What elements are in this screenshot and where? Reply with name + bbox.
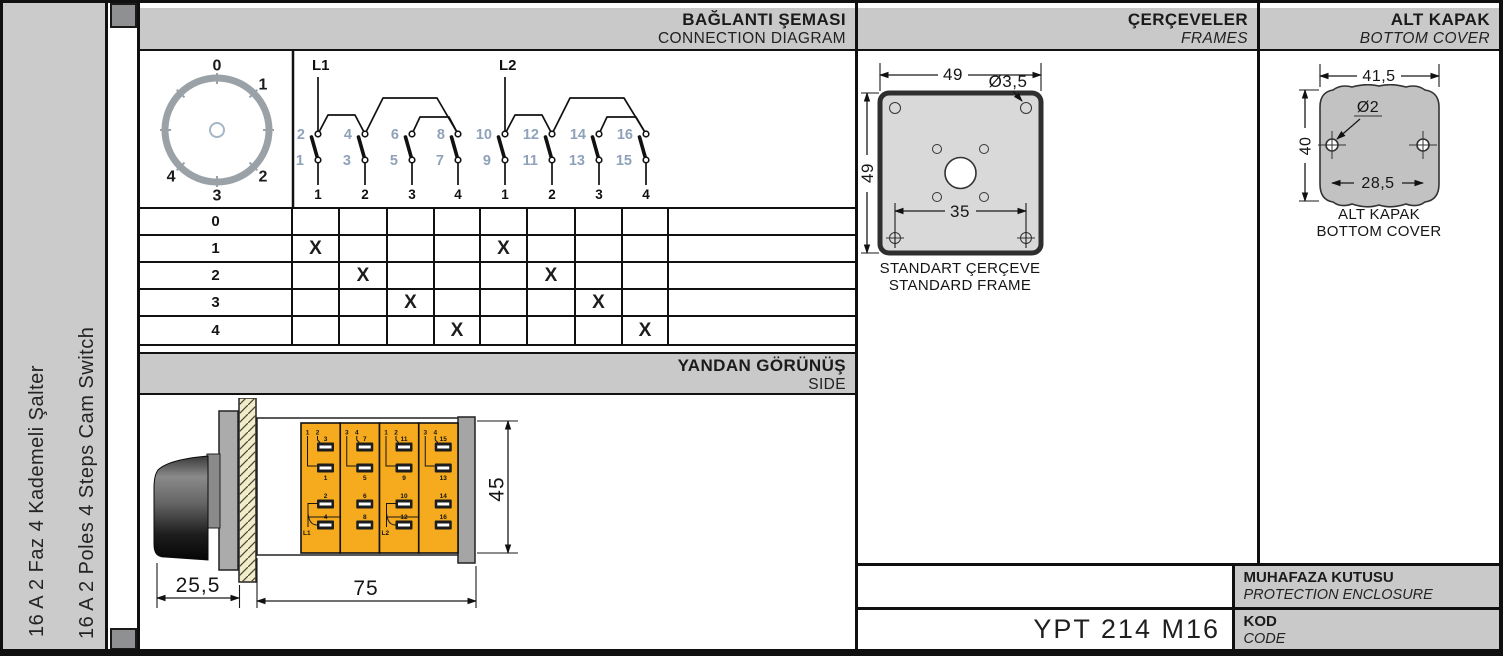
terminal-slot [398, 524, 410, 527]
titleblock-top-line [855, 563, 1503, 566]
contact-blade [640, 137, 646, 157]
table-cell [340, 236, 388, 263]
contact-blade [406, 137, 412, 157]
contact-blade [546, 137, 552, 157]
pole-module: 347568 [340, 423, 379, 553]
contact-switch: 432 [343, 127, 369, 202]
x-mark-cell: X [481, 236, 528, 263]
terminal-slot [320, 467, 332, 470]
contact-switch: 14133 [569, 127, 603, 202]
table-cell [528, 209, 576, 236]
frames-title-tr: ÇERÇEVELER [858, 10, 1249, 30]
terminal-slot [359, 503, 371, 506]
dial-shaft-hole [210, 123, 224, 137]
protection-title-tr: MUHAFAZA KUTUSU [1244, 569, 1500, 587]
dial-position-label: 1 [259, 77, 268, 94]
switching-table: 01XX2XX3XX4XX [140, 207, 855, 346]
table-filler-cell [669, 290, 855, 317]
contact-switch: 874 [436, 127, 462, 202]
module-top-number: 4 [433, 430, 437, 437]
product-code-value: YPT 214 M16 [857, 610, 1230, 649]
section-header-connection: BAĞLANTI ŞEMASI CONNECTION DIAGRAM [140, 8, 855, 51]
terminal-number: 13 [440, 475, 448, 482]
dial-position-label: 0 [213, 58, 222, 75]
dial-position-label: 2 [259, 169, 268, 186]
terminal-number: 14 [440, 493, 448, 500]
lower-terminal-number: 11 [523, 153, 538, 169]
product-title-turkish: 16 A 2 Faz 4 Kademeli Şalter [26, 365, 49, 637]
lower-terminal-number: 13 [569, 153, 585, 169]
x-mark-cell: X [528, 263, 576, 290]
position-column-number: 1 [501, 187, 509, 202]
upper-contact-node [549, 131, 555, 137]
table-cell [576, 317, 623, 344]
terminal-number: 11 [401, 436, 408, 443]
section-header-bottom-cover: ALT KAPAK BOTTOM COVER [1260, 8, 1500, 51]
frame-hole-spacing-dim: 35 [950, 202, 970, 221]
binder-strip [108, 3, 137, 649]
terminal-number: 8 [363, 514, 367, 521]
module-top-number: 2 [316, 430, 320, 437]
terminal-number: 5 [363, 475, 367, 482]
frame-drawing: 49 Ø3,5 49 35 STANDART ÇERÇEVE STANDARD … [855, 51, 1257, 350]
upper-contact-node [643, 131, 649, 137]
position-column-number: 4 [454, 187, 462, 202]
bottom-cover-title-tr: ALT KAPAK [1260, 10, 1491, 30]
table-filler-cell [669, 236, 855, 263]
frame-width-dim: 49 [943, 65, 963, 84]
terminal-number: 10 [400, 493, 408, 500]
table-filler-cell [669, 209, 855, 236]
table-cell [623, 263, 669, 290]
upper-contact-node [596, 131, 602, 137]
lower-contact-node [455, 157, 461, 163]
frame-caption-tr: STANDART ÇERÇEVE [880, 260, 1041, 277]
side-title-tr: YANDAN GÖRÜNÜŞ [140, 356, 846, 376]
x-mark-cell: X [435, 317, 481, 344]
bottom-cover-drawing: 41,5 Ø2 40 28,5 ALT KAPAK BOTTOM COVER [1257, 51, 1501, 350]
side-title-en: SIDE [140, 376, 846, 394]
module-top-number: 4 [355, 430, 359, 437]
terminal-number: 9 [402, 475, 406, 482]
table-cell [293, 317, 340, 344]
table-cell [576, 209, 623, 236]
cover-hole-dim: Ø2 [1357, 99, 1379, 116]
position-column-number: 4 [642, 187, 650, 202]
lower-contact-node [596, 157, 602, 163]
terminal-slot [398, 503, 410, 506]
lower-terminal-number: 1 [296, 153, 304, 169]
upper-terminal-number: 6 [391, 127, 399, 143]
lower-contact-node [315, 157, 321, 163]
table-filler-cell [669, 263, 855, 290]
table-row-label: 3 [140, 290, 293, 317]
table-filler-cell [669, 317, 855, 344]
module-top-number: 3 [423, 430, 427, 437]
table-cell [528, 290, 576, 317]
lower-terminal-number: 9 [483, 153, 491, 169]
lower-terminal-number: 15 [616, 153, 632, 169]
table-cell [623, 236, 669, 263]
terminal-slot [359, 524, 371, 527]
terminal-slot [320, 524, 332, 527]
terminal-slot [437, 446, 449, 449]
code-cell: KOD CODE [1235, 610, 1500, 649]
terminal-number: 3 [324, 436, 328, 443]
body-length-dim: 75 [353, 577, 378, 600]
position-column-number: 3 [595, 187, 603, 202]
contact-blade [359, 137, 365, 157]
upper-terminal-number: 2 [297, 127, 305, 143]
contact-blade [593, 137, 599, 157]
module-top-number: 2 [394, 430, 398, 437]
terminal-slot [437, 524, 449, 527]
lower-terminal-number: 5 [390, 153, 398, 169]
table-cell [481, 209, 528, 236]
position-column-number: 2 [361, 187, 369, 202]
contact-switch: 211 [296, 127, 322, 202]
terminal-slot [437, 467, 449, 470]
x-mark-cell: X [576, 290, 623, 317]
right-vertical-divider [1257, 3, 1260, 564]
table-cell [528, 236, 576, 263]
x-mark-cell: X [293, 236, 340, 263]
product-title-english: 16 A 2 Poles 4 Steps Cam Switch [76, 327, 99, 639]
connection-title-en: CONNECTION DIAGRAM [140, 30, 846, 48]
table-row-label: 1 [140, 236, 293, 263]
table-cell [576, 236, 623, 263]
connection-title-tr: BAĞLANTI ŞEMASI [140, 10, 846, 30]
frame-center-hole [945, 158, 976, 189]
contact-blade [452, 137, 458, 157]
code-title-en: CODE [1244, 631, 1500, 648]
table-row-label: 0 [140, 209, 293, 236]
table-cell [340, 317, 388, 344]
module-feed-label: L2 [382, 530, 390, 537]
terminal-number: 1 [324, 475, 328, 482]
upper-contact-node [362, 131, 368, 137]
module-top-number: 1 [384, 430, 388, 437]
contact-blade [499, 137, 505, 157]
table-cell [435, 290, 481, 317]
contact-switches: 2114326538741091121121413316154 [296, 127, 650, 202]
lower-contact-node [643, 157, 649, 163]
x-mark-cell: X [623, 317, 669, 344]
table-cell [435, 236, 481, 263]
feed-label-l1: L1 [312, 57, 330, 74]
switch-knob [154, 456, 208, 560]
table-cell [528, 317, 576, 344]
table-cell [388, 317, 435, 344]
table-cell [481, 290, 528, 317]
upper-terminal-number: 10 [476, 127, 492, 143]
terminal-number: 7 [363, 436, 367, 443]
position-column-number: 1 [314, 187, 322, 202]
terminal-slot [359, 446, 371, 449]
panel-wall-hatch [239, 398, 256, 582]
upper-terminal-number: 4 [344, 127, 352, 143]
upper-terminal-number: 14 [570, 127, 586, 143]
knob-depth-dim: 25,5 [176, 574, 221, 597]
upper-contact-node [409, 131, 415, 137]
x-mark-cell: X [388, 290, 435, 317]
code-title-tr: KOD [1244, 613, 1500, 631]
cover-width-dim: 41,5 [1362, 68, 1395, 85]
frame-caption-en: STANDARD FRAME [889, 277, 1031, 294]
upper-contact-node [455, 131, 461, 137]
cover-caption-en: BOTTOM COVER [1317, 223, 1442, 240]
dial-position-label: 4 [167, 169, 176, 186]
table-cell [576, 263, 623, 290]
contact-switch: 653 [390, 127, 416, 202]
section-header-side: YANDAN GÖRÜNÜŞ SIDE [140, 352, 855, 395]
contact-switch: 16154 [616, 127, 650, 202]
table-cell [293, 209, 340, 236]
dial-position-label: 3 [213, 188, 222, 205]
bridge-wire [412, 117, 458, 134]
table-cell [435, 263, 481, 290]
table-cell [435, 209, 481, 236]
sidebar-divider [105, 0, 108, 656]
side-view-drawing: 123124L1347568121191012L23415131416 25,5… [140, 398, 855, 649]
table-cell [388, 263, 435, 290]
lower-contact-node [549, 157, 555, 163]
table-cell [388, 236, 435, 263]
upper-terminal-number: 8 [437, 127, 445, 143]
feed-label-l2: L2 [499, 57, 517, 74]
module-top-number: 3 [345, 430, 349, 437]
terminal-number: 6 [363, 493, 367, 500]
table-row-label: 2 [140, 263, 293, 290]
pole-module: 3415131416 [419, 423, 458, 553]
product-sidebar: 16 A 2 Faz 4 Kademeli Şalter 16 A 2 Pole… [3, 3, 105, 649]
titleblock-vertical-line [1232, 563, 1235, 649]
table-cell [340, 290, 388, 317]
frame-hole-dim: Ø3,5 [989, 72, 1028, 91]
table-cell [340, 209, 388, 236]
bottom-cover-title-en: BOTTOM COVER [1260, 30, 1491, 48]
x-mark-cell: X [340, 263, 388, 290]
table-cell [293, 290, 340, 317]
terminal-slot [437, 503, 449, 506]
module-top-number: 1 [306, 430, 310, 437]
protection-title-en: PROTECTION ENCLOSURE [1244, 587, 1500, 604]
cover-hole-spacing-dim: 28,5 [1361, 175, 1394, 192]
terminal-slot [398, 446, 410, 449]
contact-switch: 12112 [523, 127, 556, 202]
body-height-dim: 45 [485, 476, 508, 501]
terminal-number: 15 [440, 436, 448, 443]
contact-blade [312, 137, 318, 157]
table-cell [623, 290, 669, 317]
strip-divider [137, 0, 140, 656]
terminal-number: 16 [440, 514, 448, 521]
contact-switch: 1091 [476, 127, 509, 202]
section-header-frames: ÇERÇEVELER FRAMES [858, 8, 1258, 51]
lower-terminal-number: 3 [343, 153, 351, 169]
table-cell [623, 209, 669, 236]
punch-mark-top [110, 3, 137, 28]
pole-modules: 123124L1347568121191012L23415131416 [301, 423, 458, 553]
knob-shaft [207, 454, 220, 528]
rear-cap [458, 417, 475, 563]
lower-terminal-number: 7 [436, 153, 444, 169]
position-column-number: 3 [408, 187, 416, 202]
lower-contact-node [502, 157, 508, 163]
table-row-label: 4 [140, 317, 293, 344]
upper-terminal-number: 16 [617, 127, 633, 143]
lower-contact-node [362, 157, 368, 163]
cover-caption-tr: ALT KAPAK [1338, 206, 1420, 223]
frames-title-en: FRAMES [858, 30, 1249, 48]
lower-contact-node [409, 157, 415, 163]
rotary-dial-drawing: 01234 [160, 58, 274, 205]
position-column-number: 2 [548, 187, 556, 202]
cover-height-dim: 40 [1298, 137, 1315, 156]
punch-mark-bottom [110, 628, 137, 650]
terminal-slot [359, 467, 371, 470]
terminal-slot [320, 503, 332, 506]
datasheet-page: 16 A 2 Faz 4 Kademeli Şalter 16 A 2 Pole… [0, 0, 1503, 656]
protection-enclosure-cell: MUHAFAZA KUTUSU PROTECTION ENCLOSURE [1235, 566, 1500, 608]
frame-height-dim: 49 [858, 163, 877, 183]
terminal-number: 2 [324, 493, 328, 500]
titleblock-mid-line [855, 607, 1503, 610]
main-vertical-divider [855, 3, 858, 649]
upper-terminal-number: 12 [523, 127, 539, 143]
upper-contact-node [502, 131, 508, 137]
module-feed-label: L1 [303, 530, 311, 537]
table-cell [481, 317, 528, 344]
connection-diagram: 01234 L1 L2 2114326538741091121121413316… [140, 51, 855, 207]
terminal-slot [398, 467, 410, 470]
table-cell [481, 263, 528, 290]
table-cell [388, 209, 435, 236]
mounting-plate [219, 411, 238, 570]
bridge-wire [318, 115, 365, 134]
table-cell [293, 263, 340, 290]
terminal-slot [320, 446, 332, 449]
upper-contact-node [315, 131, 321, 137]
